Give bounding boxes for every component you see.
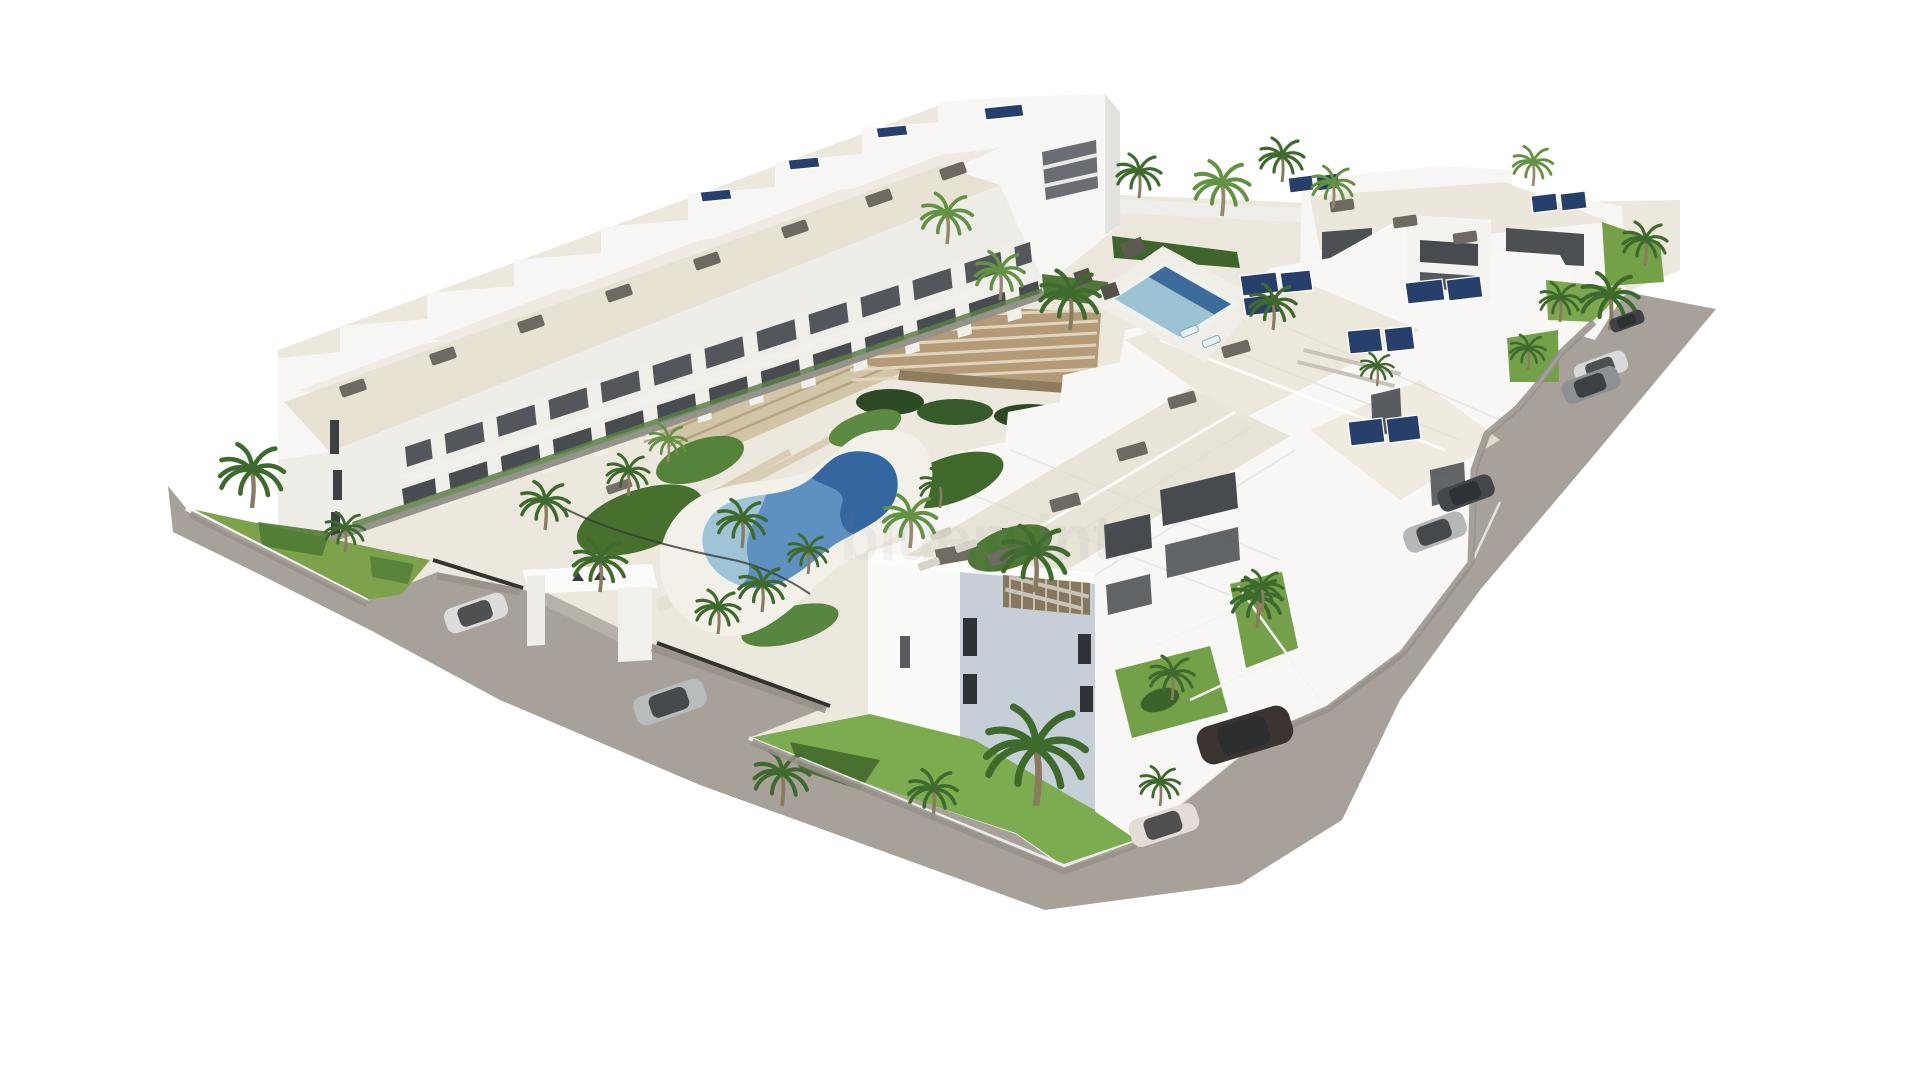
svg-text:blueprint: blueprint	[840, 502, 1114, 574]
